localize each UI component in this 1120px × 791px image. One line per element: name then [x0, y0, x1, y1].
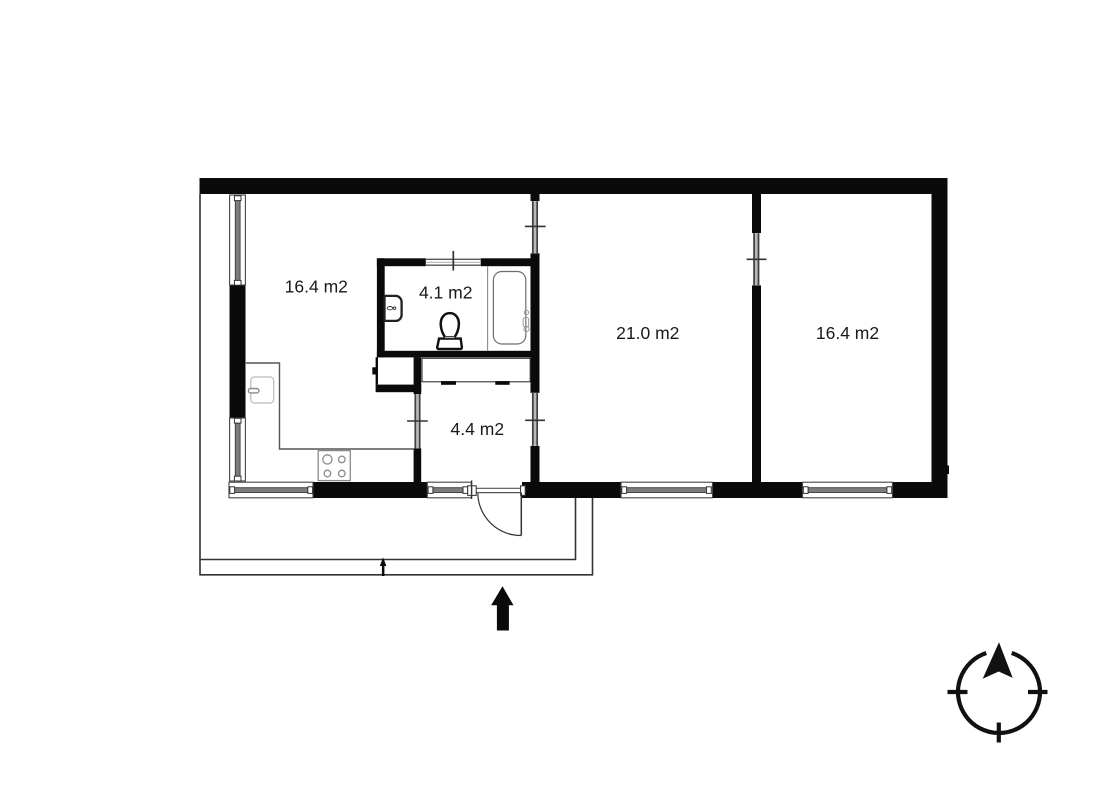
svg-text:21.0 m2: 21.0 m2 [616, 323, 679, 343]
svg-text:16.4 m2: 16.4 m2 [816, 323, 879, 343]
svg-text:4.4 m2: 4.4 m2 [451, 419, 505, 439]
svg-text:4.1 m2: 4.1 m2 [419, 283, 473, 303]
svg-text:16.4 m2: 16.4 m2 [285, 277, 348, 297]
